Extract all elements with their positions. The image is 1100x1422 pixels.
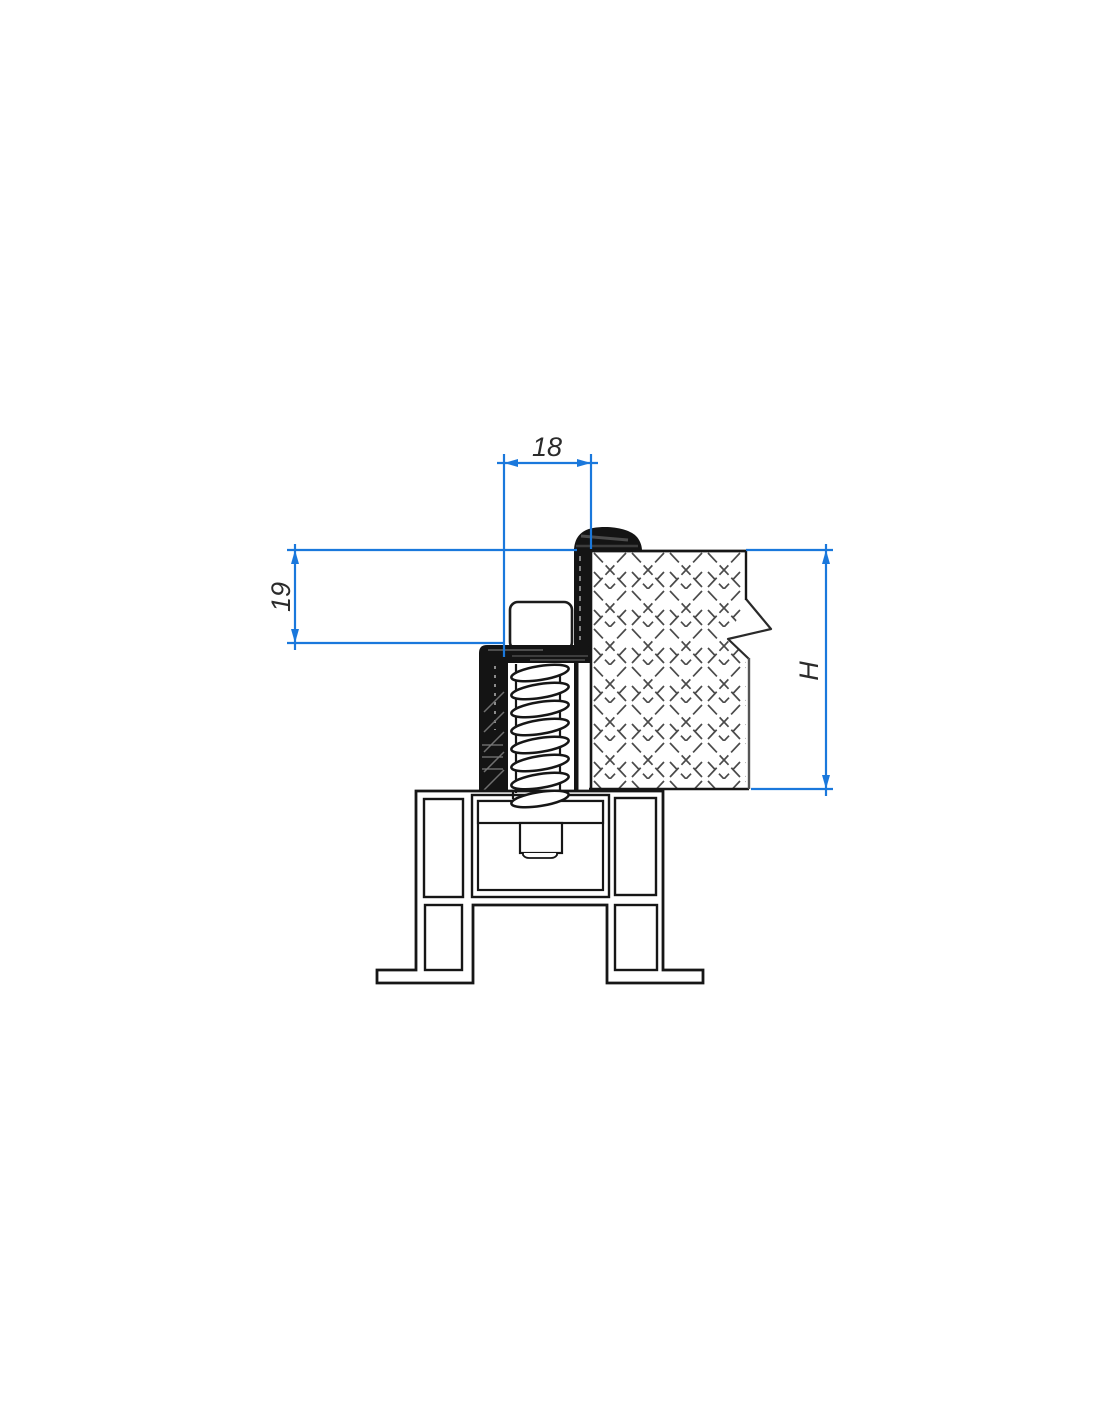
- door-panel: [589, 551, 771, 789]
- dim-19-label: 19: [266, 582, 296, 612]
- plunger-cap: [510, 602, 572, 650]
- dim-18-arrow-right: [577, 459, 591, 467]
- dim-19-arrow-bottom: [291, 629, 299, 643]
- dim-H-arrow-top: [822, 550, 830, 564]
- dim-18-label: 18: [532, 432, 562, 462]
- dimension-H: H: [746, 544, 833, 796]
- dim-19-arrow-top: [291, 550, 299, 564]
- adjustment-screw-head: [520, 823, 562, 853]
- profile-chamber-lower-right: [615, 905, 657, 970]
- spring-spindle: [510, 662, 569, 811]
- drawing-canvas: 18 19 H: [0, 0, 1100, 1422]
- dim-H-arrow-bottom: [822, 775, 830, 789]
- threshold-profile: [377, 791, 703, 983]
- door-panel-hatch: [591, 551, 746, 789]
- seal-left-wall: [479, 657, 508, 793]
- profile-chamber-upper-left: [424, 799, 463, 897]
- profile-chamber-lower-left: [425, 905, 462, 970]
- dim-18-arrow-left: [504, 459, 518, 467]
- seal-right-wall: [574, 663, 579, 791]
- screw-head-chamfer: [523, 853, 557, 858]
- dim-H-label: H: [794, 661, 824, 681]
- profile-chamber-upper-right: [615, 798, 656, 895]
- technical-drawing: 18 19 H: [0, 0, 1100, 1422]
